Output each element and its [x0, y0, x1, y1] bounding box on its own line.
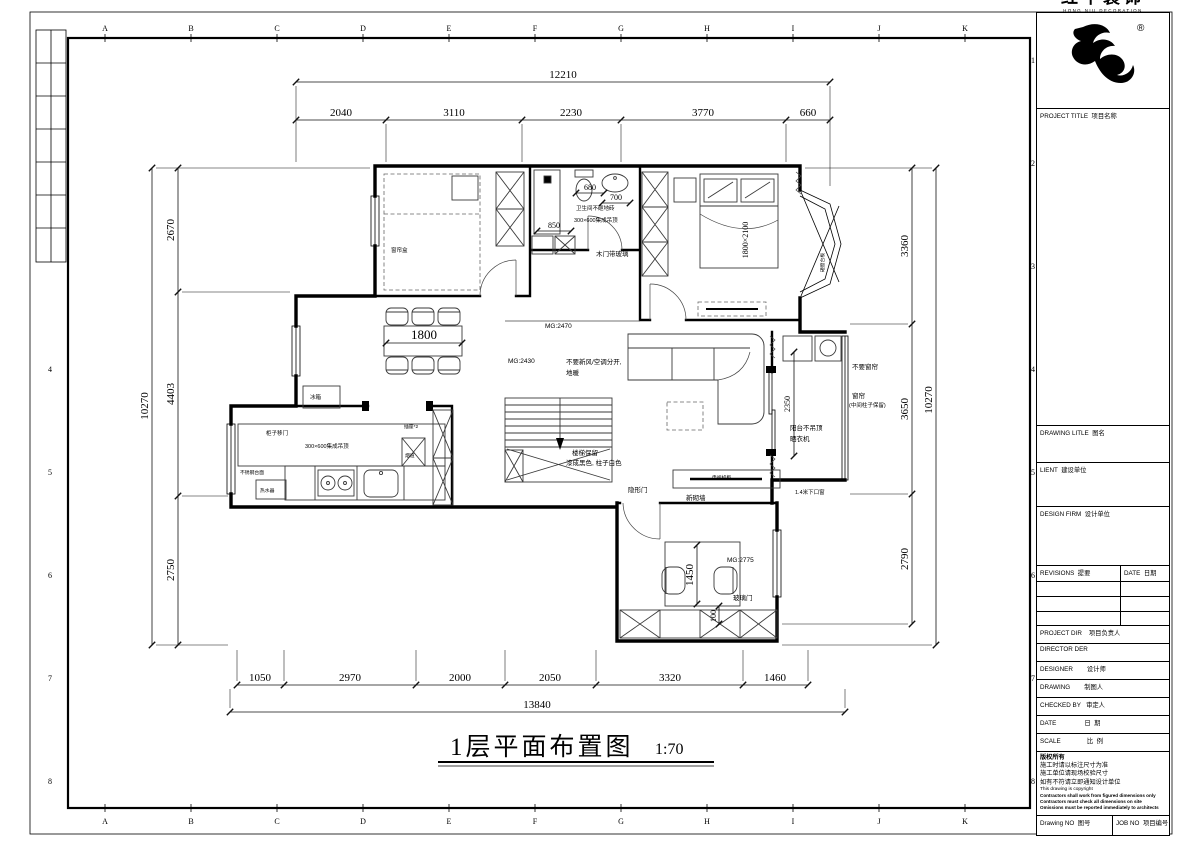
svg-text:3770: 3770: [692, 107, 715, 119]
hongniu-logo-icon: [1072, 24, 1134, 83]
svg-text:1450: 1450: [684, 564, 696, 587]
svg-text:2000: 2000: [449, 672, 472, 684]
note-kitchen-ceiling: 300×600集成吊顶: [305, 442, 349, 450]
grid-letter: A: [102, 24, 108, 33]
copyright-title: 版权所有: [1037, 752, 1169, 762]
washer-units: [783, 336, 841, 361]
date-col-label: DATE 日期: [1121, 566, 1169, 577]
coffee-table: [667, 402, 703, 430]
svg-text:1050: 1050: [249, 672, 272, 684]
beam-height-dining: MG:2430: [508, 358, 535, 365]
svg-text:1: 1: [1031, 56, 1035, 65]
svg-text:J: J: [877, 817, 880, 826]
svg-text:晒衣机: 晒衣机: [790, 434, 810, 443]
beam-height-hall: MG:2470: [545, 323, 572, 330]
revisions-label: REVISIONS 提要: [1037, 566, 1120, 577]
svg-text:D: D: [360, 24, 366, 33]
balcony-slider: [769, 372, 775, 452]
registered-mark: ®: [1137, 23, 1145, 34]
note-no-curtain: 不要窗帘: [852, 362, 879, 371]
svg-text:2: 2: [1031, 159, 1035, 168]
svg-text:2050: 2050: [539, 672, 562, 684]
svg-text:8: 8: [48, 777, 52, 786]
svg-text:680: 680: [584, 183, 596, 192]
balcony-glazing: [842, 336, 848, 480]
note-fridge: 冰箱: [310, 393, 322, 401]
svg-text:4: 4: [1031, 365, 1035, 374]
svg-text:J: J: [877, 24, 880, 33]
date-label: DATE 日 期: [1037, 716, 1169, 727]
note-bath-floor: 卫生间不砸地砖: [576, 204, 615, 212]
dining-window: [292, 326, 300, 376]
svg-text:850: 850: [548, 221, 560, 230]
svg-text:2670: 2670: [165, 219, 177, 242]
svg-text:5: 5: [48, 468, 52, 477]
study-window: [773, 530, 781, 597]
fridge: [303, 386, 340, 408]
svg-text:(中间柱子保留): (中间柱子保留): [849, 401, 886, 409]
svg-text:1460: 1460: [764, 672, 787, 684]
svg-text:I: I: [792, 24, 795, 33]
svg-text:I: I: [792, 817, 795, 826]
svg-text:2040: 2040: [330, 107, 353, 119]
beam-height-study: MG:2775: [727, 557, 754, 564]
note-glass-door: 玻璃门: [733, 593, 753, 602]
project-dir-label: PROJECT DIR 项目负责人: [1037, 626, 1169, 637]
designer-label: DESIGNER 设计师: [1037, 662, 1169, 673]
checked-by-label: CHECKED BY 审定人: [1037, 698, 1169, 709]
svg-text:13840: 13840: [523, 699, 551, 711]
dim-top-total: 12210: [549, 69, 577, 81]
drawing-no-label: Drawing NO 图号: [1037, 816, 1112, 827]
svg-text:2970: 2970: [339, 672, 362, 684]
svg-text:D: D: [360, 817, 366, 826]
svg-text:3110: 3110: [443, 107, 465, 119]
hidden-door: [623, 503, 660, 539]
svg-text:4: 4: [48, 365, 52, 374]
note-socket: 插座*2: [404, 423, 418, 430]
bedroom2-window: [371, 196, 379, 246]
svg-text:K: K: [962, 24, 968, 33]
svg-text:E: E: [447, 24, 452, 33]
wardrobe-2: [496, 172, 524, 246]
svg-text:C: C: [274, 817, 279, 826]
plan-title: 1层平面布置图: [450, 733, 634, 761]
doors: [480, 216, 686, 539]
svg-text:10270: 10270: [139, 392, 151, 420]
svg-text:A: A: [102, 817, 108, 826]
revision-strip: [36, 30, 66, 262]
note-curtain-box: 窗帘盒: [391, 246, 408, 254]
svg-text:F: F: [533, 817, 538, 826]
client-label: LIENT 建设单位: [1037, 463, 1169, 474]
wardrobe-master: [642, 172, 668, 276]
svg-text:2350: 2350: [783, 396, 792, 412]
svg-text:660: 660: [800, 107, 817, 119]
drawing-sheet: A B C D E F G H I J K A B C D E F G H I …: [0, 0, 1200, 844]
director-label: DIRECTOR DER: [1037, 644, 1169, 653]
sheet-border: [30, 12, 1172, 834]
svg-text:K: K: [962, 817, 968, 826]
title-block: ® 红牛装饰 HONG NIU DECORATION PROJECT TITLE…: [1036, 12, 1170, 836]
svg-text:2230: 2230: [560, 107, 583, 119]
svg-text:3360: 3360: [899, 235, 911, 258]
svg-text:700: 700: [610, 193, 622, 202]
kitchen-sink: [364, 470, 398, 497]
note-stair-keep: 楼梯保留: [572, 448, 598, 457]
svg-text:B: B: [188, 817, 193, 826]
basin: [602, 174, 628, 192]
svg-text:7: 7: [1031, 674, 1035, 683]
floorplan-canvas: A B C D E F G H I J K A B C D E F G H I …: [0, 0, 1200, 844]
staircase: [505, 398, 612, 482]
svg-text:5: 5: [1031, 468, 1035, 477]
note-low-window: 1.4米下口窗: [795, 488, 825, 496]
svg-text:H: H: [704, 817, 710, 826]
note-hidden-door: 隐形门: [628, 485, 648, 494]
plan-title-group: 1层平面布置图 1:70: [438, 733, 714, 766]
job-no-label: JOB NO 项目编号: [1113, 816, 1169, 827]
bed-2: [384, 174, 480, 290]
interior-walls: [296, 166, 800, 507]
nightstand: [674, 178, 696, 202]
svg-text:100: 100: [709, 610, 718, 622]
svg-text:7: 7: [48, 674, 52, 683]
svg-text:2750: 2750: [165, 559, 177, 582]
scale-label: SCALE 比 例: [1037, 734, 1169, 745]
svg-text:4403: 4403: [165, 383, 177, 406]
bath-cabinet: [532, 236, 575, 254]
svg-text:3320: 3320: [659, 672, 682, 684]
stove: [318, 470, 354, 496]
drawing-title-label: DRAWING LITLE 图名: [1037, 426, 1169, 437]
sofa: [628, 334, 764, 424]
svg-text:漆成黑色, 柱子白色: 漆成黑色, 柱子白色: [566, 458, 622, 467]
project-title-label: PROJECT TITLE 项目名称: [1037, 109, 1169, 120]
desk: [662, 542, 740, 606]
svg-text:10270: 10270: [923, 386, 935, 414]
master-door: [650, 284, 686, 320]
plan-scale: 1:70: [655, 741, 683, 758]
revisions-table: REVISIONS 提要 DATE 日期: [1037, 566, 1169, 626]
svg-text:8: 8: [1031, 777, 1035, 786]
brand-name-cn: 红牛装饰: [1037, 0, 1169, 8]
study-cabinets: [620, 610, 777, 638]
drawn-by-label: DRAWING 制图人: [1037, 680, 1169, 691]
svg-text:6: 6: [48, 571, 52, 580]
note-counter: 不锈钢台面: [240, 469, 264, 476]
copyright-cell: 版权所有 施工时请以标注尺寸为准 施工单位请现场校验尺寸 如有不符请立即通知设计…: [1037, 752, 1169, 816]
note-bath-door: 木门带玻璃: [596, 249, 629, 258]
note-tv-cabinet: 电视机柜: [712, 474, 731, 481]
bedroom2-door: [480, 260, 516, 296]
note-curtain: 窗帘: [852, 391, 866, 400]
drawing-no-cell: Drawing NO 图号 JOB NO 项目编号: [1037, 816, 1169, 835]
svg-text:B: B: [188, 24, 193, 33]
note-hvac: 不要新风/空调分开,: [566, 357, 622, 366]
svg-text:地暖: 地暖: [566, 368, 580, 377]
svg-text:F: F: [533, 24, 538, 33]
svg-text:C: C: [274, 24, 279, 33]
note-cabinet-slider: 柜子移门: [266, 429, 288, 437]
svg-text:G: G: [618, 817, 624, 826]
furniture: [238, 170, 841, 638]
tv-cabinet-master: [698, 302, 766, 316]
svg-text:H: H: [704, 24, 710, 33]
svg-text:3: 3: [1031, 262, 1035, 271]
note-bay: 砸窗台板: [819, 253, 826, 272]
note-bath-ceiling: 300×600集成吊顶: [574, 216, 618, 224]
design-firm-label: DESIGN FIRM 设计单位: [1037, 507, 1169, 518]
note-water-heater: 热水器: [260, 487, 275, 494]
svg-text:G: G: [618, 24, 624, 33]
svg-text:3650: 3650: [899, 398, 911, 421]
note-flue: 烟道: [405, 452, 415, 459]
note-balcony-ceiling: 阳台不吊顶: [790, 423, 823, 432]
svg-text:6: 6: [1031, 571, 1035, 580]
note-new-wall: 新砌墙: [686, 493, 706, 502]
logo-cell: ® 红牛装饰 HONG NIU DECORATION: [1037, 13, 1169, 109]
bed-size-label: 1800×2100: [741, 222, 750, 259]
bed-master: [700, 174, 778, 268]
kitchen-window: [227, 424, 235, 494]
svg-text:E: E: [447, 817, 452, 826]
bay-window: [800, 190, 841, 298]
exterior-walls: [231, 166, 845, 641]
svg-text:2790: 2790: [899, 548, 911, 571]
svg-text:1800: 1800: [411, 327, 437, 342]
